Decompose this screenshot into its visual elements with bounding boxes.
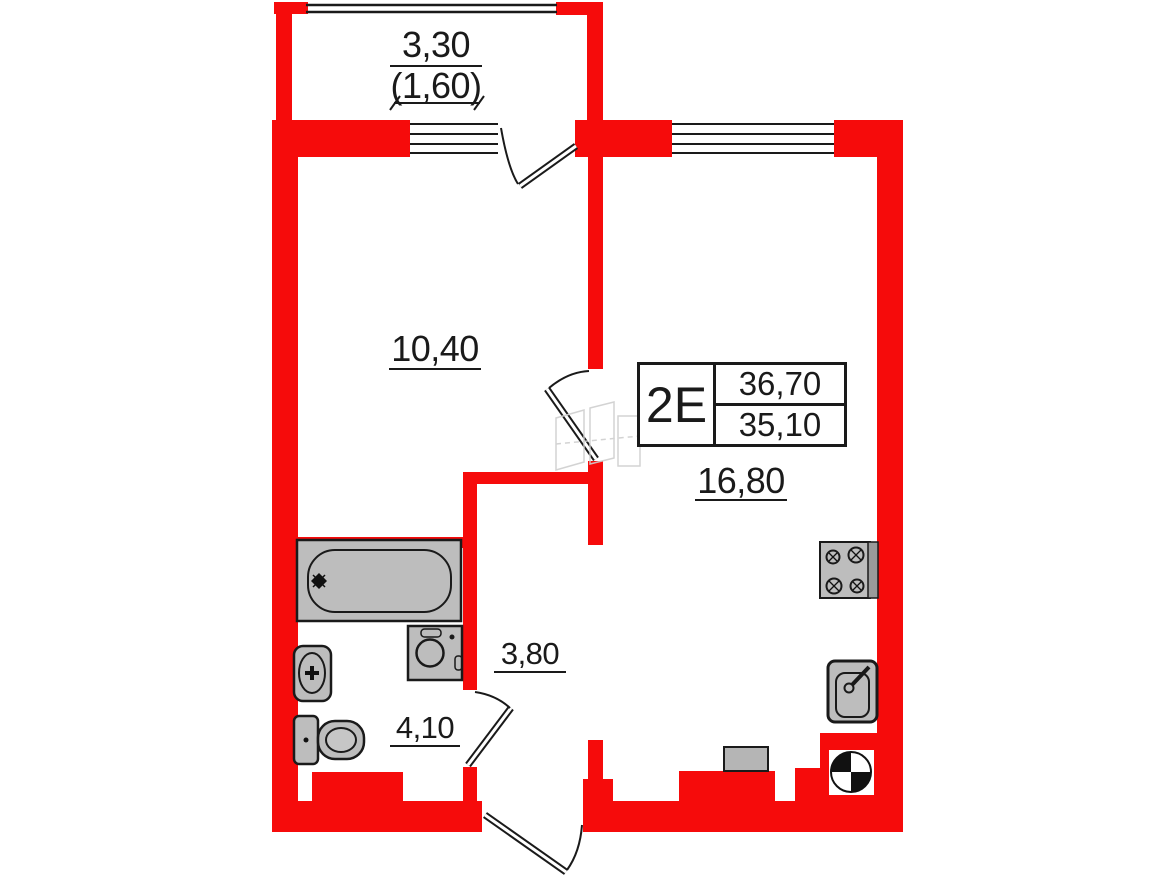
plan-linework: [0, 0, 1173, 880]
floor-plan-canvas: 3,30 (1,60) 10,40 16,80 3,80 4,10 2E 36,…: [0, 0, 1173, 880]
total-area-value: 36,70: [716, 365, 844, 406]
washing-machine: [408, 626, 462, 680]
room1-area-label: 10,40: [389, 331, 481, 370]
vent-shaft-icon: [829, 750, 874, 795]
apartment-areas: 36,70 35,10: [716, 365, 844, 444]
bath-area-label: 4,10: [390, 712, 460, 747]
living-area-label: 16,80: [695, 463, 787, 501]
bathtub: [297, 540, 461, 621]
bathroom-door: [468, 692, 511, 765]
balcony-window: [410, 124, 498, 153]
apartment-stamp: 2E 36,70 35,10: [637, 362, 847, 447]
entrance-door: [485, 815, 582, 872]
cabinet: [724, 747, 768, 771]
toilet: [294, 716, 364, 764]
balcony-area-label: (1,60): [383, 68, 489, 104]
kitchen-sink: [828, 661, 877, 722]
living-room-window: [672, 124, 834, 153]
room1-door: [547, 371, 596, 459]
balcony-width-label: 3,30: [390, 27, 482, 67]
furniture-ghost-outline: [556, 402, 640, 470]
stove: [820, 542, 878, 598]
wash-basin: [294, 646, 331, 701]
balcony-door: [501, 128, 576, 186]
living-area-value: 35,10: [716, 406, 844, 444]
balcony-railing: [306, 5, 557, 12]
apartment-type-label: 2E: [640, 365, 716, 444]
hall-area-label: 3,80: [494, 638, 566, 673]
